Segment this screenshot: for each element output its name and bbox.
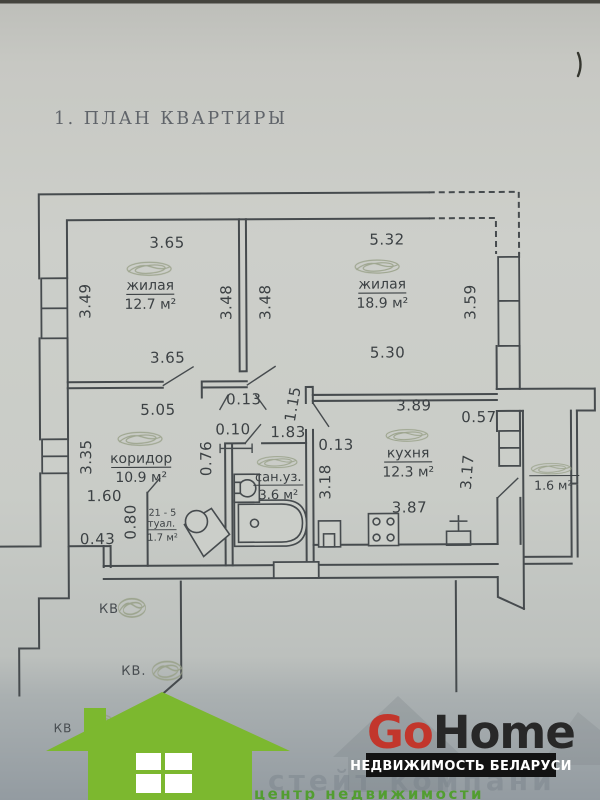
dim-niche-010: 0.10 (215, 420, 251, 438)
dim-wall-013b: 0.13 (318, 436, 354, 454)
room-name: сан.уз. (255, 470, 302, 485)
dim-corridor-top: 5.05 (140, 401, 176, 419)
stove-icon (368, 513, 398, 545)
dim-kitchen-win: 0.57 (461, 408, 497, 426)
dim-hall-160: 1.60 (87, 487, 123, 505)
dim-kitchen-top: 3.89 (396, 396, 432, 414)
dim-living1-right: 3.48 (217, 285, 235, 321)
room-name: туал. (148, 519, 176, 530)
logo-go-text: Go (367, 706, 433, 759)
dim-living1-top: 3.65 (149, 234, 185, 252)
room-name: кухня (387, 445, 430, 461)
dim-wall-013a: 0.13 (226, 390, 262, 408)
kitchen-cabinet-icon (318, 521, 340, 547)
room-area: 3.6 м² (258, 488, 298, 503)
room-number: 21 - 5 (149, 508, 177, 519)
entrance-threshold (274, 562, 319, 578)
window (499, 431, 520, 466)
window (498, 257, 519, 346)
photo-of-floor-plan: 1. ПЛАН КВАРТИРЫ (0, 0, 600, 800)
dim-bath-right: 3.18 (316, 464, 334, 500)
dim-bath-door: 1.83 (270, 423, 306, 441)
room-area: 12.3 м² (382, 464, 434, 480)
room-area: 1.6 м² (534, 478, 572, 493)
dim-living2-right: 3.59 (461, 284, 479, 320)
room-name: коридор (110, 451, 172, 467)
room-label-balcony: 1.6 м² (529, 476, 579, 493)
dim-living2-left: 3.48 (256, 284, 274, 320)
room-label-toilet: 21 - 5 туал. 1.7 м² (147, 508, 178, 544)
dim-hall-080: 0.80 (121, 504, 139, 540)
neighbor-kv-label: КВ. (121, 664, 146, 679)
dim-living1-bottom: 3.65 (150, 349, 186, 367)
neighbor-kv-label: КВ (99, 602, 119, 617)
dim-living1-left: 3.49 (76, 283, 94, 319)
room-name: жилая (126, 278, 174, 294)
room-area: 10.9 м² (115, 470, 167, 486)
plan-title: 1. ПЛАН КВАРТИРЫ (54, 109, 288, 129)
logo-home-text: Home (433, 706, 575, 759)
room-area: 1.7 м² (147, 533, 178, 544)
photo-top-edge (0, 0, 600, 4)
window (42, 439, 68, 473)
dim-living2-bottom: 5.30 (370, 343, 406, 361)
room-area: 12.7 м² (124, 297, 176, 313)
room-area: 18.9 м² (356, 295, 408, 311)
logo-wordmark: GoHome (367, 706, 575, 759)
dim-kitchen-right: 3.17 (457, 454, 478, 491)
room-name: жилая (358, 276, 406, 292)
dim-hall-043: 0.43 (80, 530, 116, 548)
floor-plan-canvas: 1. ПЛАН КВАРТИРЫ (0, 0, 600, 800)
dim-wall-076: 0.76 (197, 441, 215, 477)
window (41, 278, 67, 338)
dim-corridor-left: 3.35 (77, 439, 95, 475)
logo-tagline-text: НЕДВИЖИМОСТЬ БЕЛАРУСИ (350, 759, 572, 774)
dim-kitchen-bottom: 3.87 (392, 498, 428, 516)
dim-living2-top: 5.32 (369, 230, 405, 248)
bathtub-icon (234, 500, 306, 546)
watermark-green-text: центр недвижимости (254, 785, 484, 800)
neighbor-kv-label: КВ (54, 721, 73, 735)
